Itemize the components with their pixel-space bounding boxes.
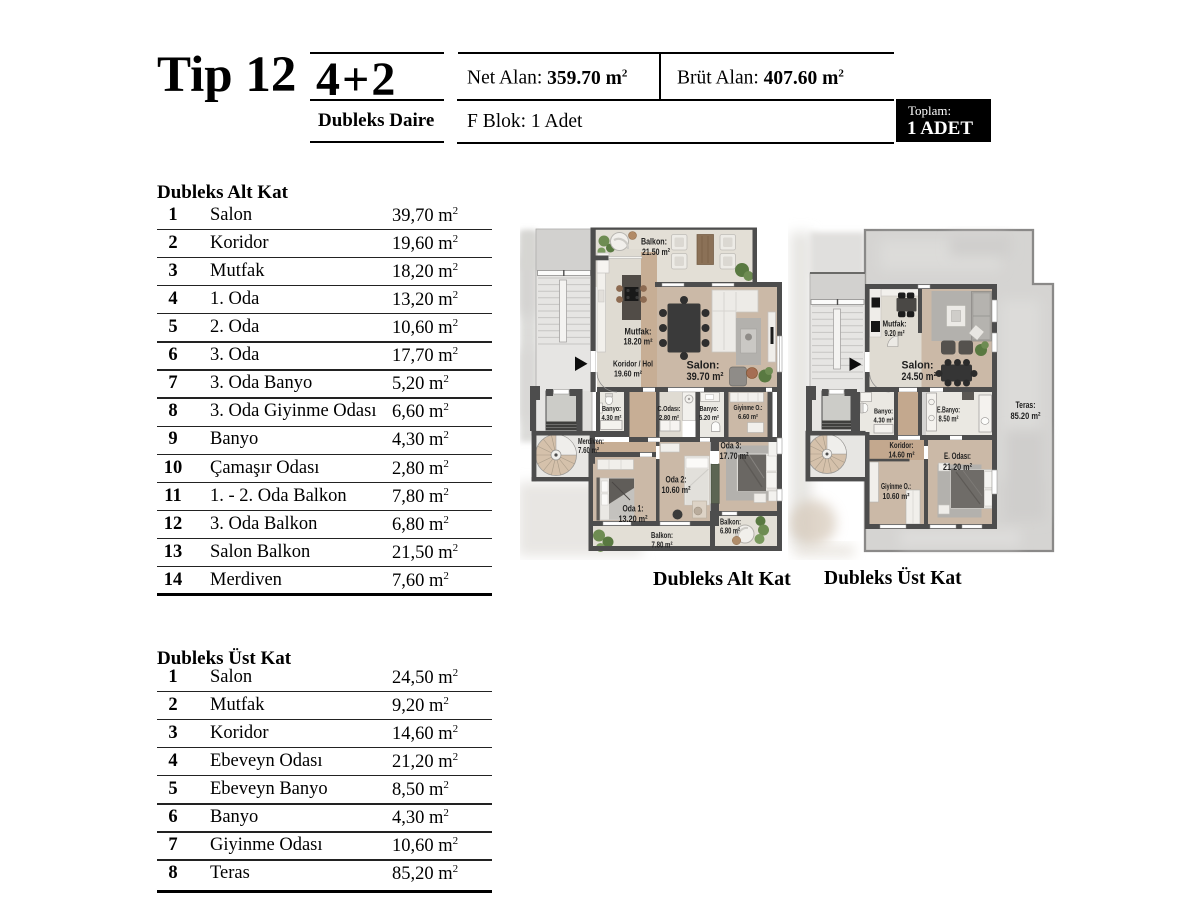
svg-text:10.60 m²: 10.60 m² <box>883 491 910 501</box>
svg-text:Teras:: Teras: <box>1016 400 1036 411</box>
svg-text:85.20 m²: 85.20 m² <box>1011 411 1041 422</box>
svg-text:C.Odası:: C.Odası: <box>658 404 681 413</box>
svg-text:5.20 m²: 5.20 m² <box>699 413 719 422</box>
svg-text:6.80 m²: 6.80 m² <box>720 527 740 536</box>
svg-text:Merdiven:: Merdiven: <box>578 437 604 446</box>
svg-text:21.20 m²: 21.20 m² <box>943 462 972 473</box>
svg-text:19.60 m²: 19.60 m² <box>614 369 642 379</box>
svg-text:Balkon:: Balkon: <box>651 530 673 540</box>
svg-text:Banyo:: Banyo: <box>602 404 621 413</box>
svg-text:Koridor / Hol: Koridor / Hol <box>613 359 653 369</box>
svg-text:Banyo:: Banyo: <box>700 404 719 413</box>
svg-text:Salon:: Salon: <box>687 360 720 372</box>
svg-text:E.Banyo:: E.Banyo: <box>937 406 960 415</box>
svg-text:7.80 m²: 7.80 m² <box>652 540 673 550</box>
svg-text:Balkon:: Balkon: <box>720 518 741 527</box>
svg-text:10.60 m²: 10.60 m² <box>662 485 691 496</box>
svg-text:2.80 m²: 2.80 m² <box>659 413 679 422</box>
svg-text:8.50 m²: 8.50 m² <box>939 415 959 424</box>
svg-text:4.30 m²: 4.30 m² <box>602 413 622 422</box>
svg-text:Mutfak:: Mutfak: <box>883 319 907 329</box>
svg-text:24.50 m²: 24.50 m² <box>902 371 937 383</box>
svg-text:Koridor:: Koridor: <box>890 440 914 450</box>
svg-text:Salon:: Salon: <box>902 360 934 372</box>
svg-text:Oda 2:: Oda 2: <box>666 475 687 486</box>
svg-text:39.70 m²: 39.70 m² <box>687 371 724 383</box>
svg-text:13.20 m²: 13.20 m² <box>619 514 648 525</box>
svg-text:18.20 m²: 18.20 m² <box>624 337 653 347</box>
svg-text:Oda 3:: Oda 3: <box>721 441 742 452</box>
svg-text:6.60 m²: 6.60 m² <box>738 412 758 421</box>
svg-text:Giyinme O.:: Giyinme O.: <box>881 481 911 491</box>
svg-text:Oda 1:: Oda 1: <box>623 504 644 515</box>
svg-text:4.30 m²: 4.30 m² <box>874 415 894 424</box>
svg-text:Mutfak:: Mutfak: <box>625 327 652 337</box>
svg-text:Banyo:: Banyo: <box>874 407 893 416</box>
svg-text:9.20 m²: 9.20 m² <box>885 328 905 338</box>
svg-text:21.50 m²: 21.50 m² <box>642 247 670 258</box>
svg-text:7.60 m²: 7.60 m² <box>578 446 599 455</box>
svg-text:E. Odası:: E. Odası: <box>944 451 971 462</box>
svg-text:Balkon:: Balkon: <box>641 237 667 248</box>
svg-text:14.60 m²: 14.60 m² <box>889 450 915 460</box>
svg-text:Giyinme O.:: Giyinme O.: <box>734 403 763 412</box>
svg-text:17.70 m²: 17.70 m² <box>720 451 749 462</box>
